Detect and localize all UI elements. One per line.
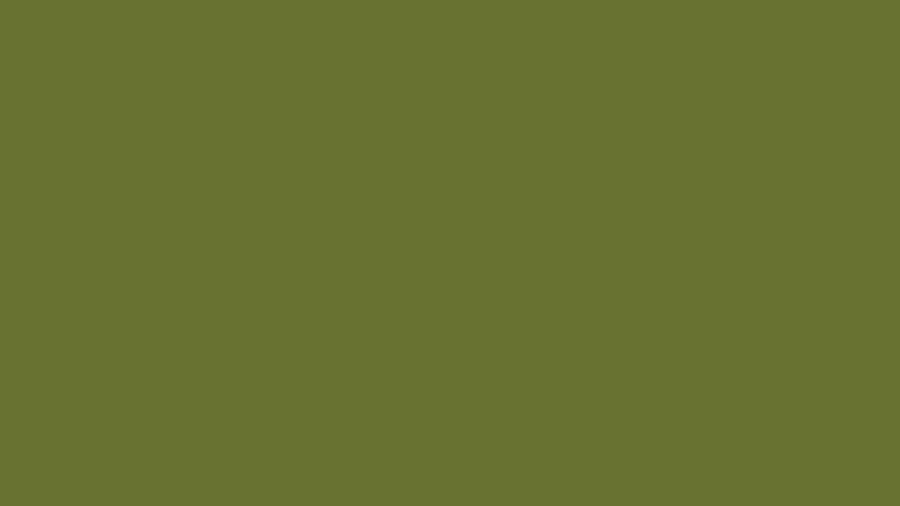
aerial-screenshot [0,0,900,506]
scene-svg [0,0,900,506]
